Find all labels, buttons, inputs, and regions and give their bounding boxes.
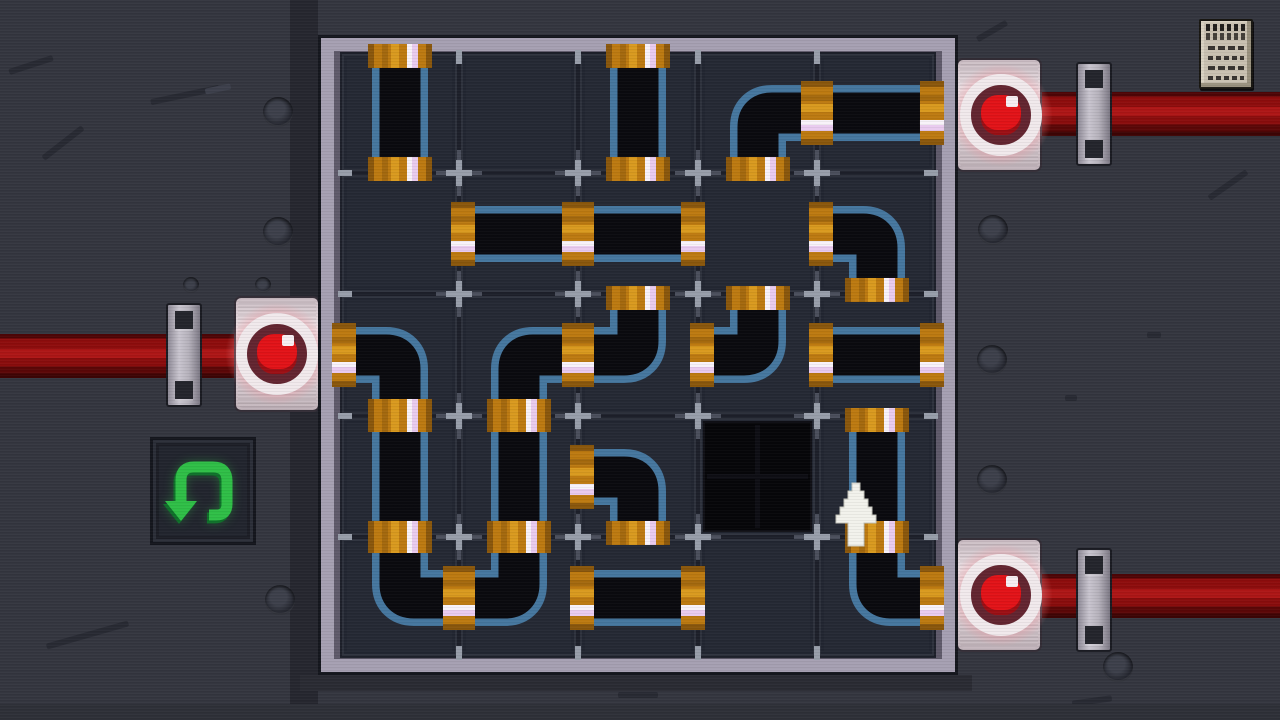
pipe-coupling [426,44,432,68]
pipe-coupling [426,529,432,553]
pipe-coupling [809,139,833,145]
elbow-bottom-left [578,416,697,537]
elbow-top-right [817,537,936,658]
pipe-coupling [368,157,432,181]
pipe-coupling [407,44,412,68]
pipe-coupling [809,120,833,125]
pipe-coupling [382,408,388,432]
pipe-coupling [451,216,475,222]
pipe-coupling [809,337,833,343]
red-pipe-top-right [1038,92,1280,136]
pipe-coupling [690,381,714,387]
rivet-bolt [263,97,293,127]
pipe-coupling [690,337,714,343]
red-pipe-bottom-right [1038,574,1280,618]
bottom-right-valve [956,538,1042,652]
pipe-coupling [809,323,833,329]
scratch-mark [976,20,1008,42]
pipe-coupling [570,459,594,465]
rivet-bolt [978,215,1008,245]
pipe-coupling [606,286,612,310]
pipe-coupling [451,202,475,266]
pipe-coupling [809,216,833,222]
pipe-coupling [570,337,594,343]
pipe-coupling [903,529,909,553]
pipe-coupling [920,381,944,387]
pipe-coupling [645,286,650,310]
pipe-coupling [920,120,944,125]
pipe-coupling [570,216,594,222]
pipe-coupling [545,529,551,553]
pipe-coupling [920,81,944,87]
scratch-mark [1147,332,1161,338]
pipe-coupling [368,157,374,181]
cell-r1-c3[interactable] [698,173,817,294]
pipe-coupling [570,202,594,266]
pipe-coupling [332,323,356,329]
pipe-coupling [451,624,475,630]
pipe-coupling [382,157,388,181]
pipe-coupling [784,286,790,310]
pipe-coupling [487,529,493,553]
pipe-coupling [690,362,714,367]
pipe-coupling [570,605,594,610]
pipe-coupling [510,408,518,432]
pipe-coupling [629,286,637,310]
pipe-coupling [451,260,475,266]
pipe-coupling [645,44,650,68]
pipe-coupling [681,216,705,222]
pipe-coupling [570,323,594,387]
pipe-coupling [681,624,705,630]
pipe-coupling [570,589,594,597]
empty-socket[interactable] [703,421,812,532]
pipe-coupling [809,81,833,145]
pipe-coupling [845,529,909,553]
elbow-bottom-left [817,173,936,294]
pipe-coupling [407,529,412,553]
pipe-coupling [690,323,714,329]
pipe-bracket-bottom-right [1076,548,1112,652]
pipe-coupling [765,286,770,310]
pipe-coupling [570,225,594,233]
pipe-coupling [681,241,705,246]
pipe-coupling [809,323,833,387]
vertical-pipe [340,416,459,537]
pipe-coupling [451,202,475,208]
vertical-pipe [340,52,459,173]
notepad-icon[interactable] [1199,19,1253,89]
rivet-bolt [265,585,295,615]
pipe-coupling [726,286,732,310]
pipe-coupling [681,566,705,572]
valve-red-light [257,334,297,374]
pipe-coupling [332,337,356,343]
pipe-coupling [809,362,833,367]
floor-shade [0,704,1280,720]
pipe-coupling [570,445,594,509]
horizontal-pipe [817,294,936,415]
pipe-coupling [681,260,705,266]
pipe-bracket-left [166,303,202,407]
pipe-coupling [426,408,432,432]
pipe-bracket-top-right [1076,62,1112,166]
pipe-coupling [487,529,551,553]
pipe-coupling [332,362,356,367]
pipe-coupling [368,408,374,432]
pipe-coupling [570,260,594,266]
pipe-coupling [451,566,475,572]
pipe-coupling [570,346,594,354]
elbow-bottom-left [340,294,459,415]
pipe-coupling [809,241,833,246]
pipe-coupling [391,529,399,553]
top-right-valve [956,58,1042,172]
pipe-coupling [920,566,944,630]
rivet-bolt [977,465,1007,495]
vertical-pipe [459,416,578,537]
pipe-coupling [845,529,851,553]
rivet-bolt [255,277,271,293]
pipe-coupling [501,529,507,553]
horizontal-pipe [578,173,697,294]
pipe-coupling [868,529,876,553]
elbow-top-right [340,537,459,658]
scratch-mark [205,83,232,94]
pipe-coupling [859,529,865,553]
pipe-coupling [501,408,507,432]
pipe-coupling [920,104,944,112]
pipe-coupling [765,157,770,181]
pipe-coupling [620,286,626,310]
pipe-coupling [920,95,944,101]
pipe-coupling [620,44,626,68]
pipe-coupling [391,44,399,68]
cell-r0-c1[interactable] [459,52,578,173]
pipe-coupling [391,408,399,432]
valve-red-light [981,95,1021,135]
pipe-coupling [920,580,944,586]
pipe-coupling [426,157,432,181]
notepad-binding [1206,33,1246,40]
pipe-coupling [809,104,833,112]
pipe-coupling [920,605,944,610]
pipe-coupling [510,529,518,553]
horizontal-pipe [459,173,578,294]
rivet-bolt [183,277,199,293]
pipe-coupling [487,408,493,432]
pipe-coupling [570,566,594,572]
pipe-coupling [332,323,356,387]
horizontal-pipe [817,52,936,173]
pipe-coupling [884,408,889,432]
pipe-coupling [391,157,399,181]
pipe-coupling [690,346,714,354]
pipe-coupling [570,566,594,630]
undo-arrow-icon [153,440,253,542]
pipe-coupling [664,44,670,68]
pipe-coupling [920,362,944,367]
elbow-top-left [698,294,817,415]
pipe-coupling [570,503,594,509]
pipe-coupling [920,566,944,572]
rivet-bolt [263,217,293,247]
pipe-coupling [570,484,594,489]
pipe-coupling [740,157,746,181]
pipe-coupling [726,157,732,181]
pipe-grid [340,52,936,658]
pipe-coupling [920,589,944,597]
pipe-coupling [570,323,594,329]
elbow-bottom-right [698,52,817,173]
pipe-coupling [681,566,705,630]
pipe-coupling [570,241,594,246]
pipe-coupling [809,81,833,87]
pipe-coupling [859,408,865,432]
pipe-coupling [332,381,356,387]
red-pipe-left [0,334,246,378]
pipe-coupling [809,202,833,266]
pipe-coupling [681,580,705,586]
cell-r4-c3[interactable] [698,537,817,658]
pipe-coupling [726,286,790,310]
pipe-coupling [368,44,432,68]
pipe-coupling [570,468,594,476]
pipe-coupling [570,445,594,451]
scratch-mark [618,692,658,698]
pipe-coupling [749,286,757,310]
pipe-coupling [690,323,714,387]
pipe-coupling [920,323,944,329]
scratch-mark [1065,395,1077,401]
pipe-coupling [664,286,670,310]
pipe-coupling [845,408,851,432]
pipe-coupling [382,529,388,553]
notepad-text-line [1208,46,1244,50]
valve-red-light [981,575,1021,615]
pipe-coupling [570,624,594,630]
pipe-coupling [570,202,594,208]
pipe-coupling [681,202,705,266]
frame-shadow [300,675,972,691]
notepad-text-line [1208,76,1244,80]
pipe-coupling [920,323,944,387]
pipe-coupling [845,408,909,432]
pipe-coupling [487,408,551,432]
pipe-coupling [681,605,705,610]
notepad-text-line [1208,66,1244,70]
pipe-coupling [368,529,374,553]
pipe-coupling [920,346,944,354]
pipe-coupling [368,44,374,68]
pipe-coupling [884,529,889,553]
pipe-coupling [545,408,551,432]
pipe-coupling [809,95,833,101]
pipe-coupling [681,202,705,208]
pipe-coupling [368,529,432,553]
rivet-bolt [1103,652,1133,682]
vertical-pipe [817,416,936,537]
pipe-coupling [606,44,670,68]
pipe-coupling [726,157,790,181]
pipe-coupling [920,139,944,145]
elbow-bottom-right [459,294,578,415]
pipe-coupling [809,381,833,387]
pipe-coupling [784,157,790,181]
pipe-coupling [920,81,944,145]
game-screen [0,0,1280,720]
pipe-coupling [451,566,475,630]
pipe-coupling [629,44,637,68]
pipe-coupling [570,580,594,586]
vertical-pipe [578,52,697,173]
pipe-coupling [920,624,944,630]
left-valve [234,296,320,412]
pipe-coupling [451,225,475,233]
pipe-coupling [407,157,412,181]
pipe-coupling [681,589,705,597]
pipe-coupling [526,408,531,432]
pipe-coupling [570,381,594,387]
pipe-coupling [407,408,412,432]
pipe-coupling [526,529,531,553]
pipe-coupling [332,346,356,354]
scratch-mark [41,125,84,161]
rivet-bolt [977,345,1007,375]
pipe-coupling [868,408,876,432]
notepad-text-line [1208,56,1244,60]
pipe-coupling [903,408,909,432]
scratch-mark [46,620,129,649]
pipe-coupling [809,202,833,208]
pipe-coupling [451,605,475,610]
pipe-coupling [740,286,746,310]
pipe-coupling [920,337,944,343]
pipe-coupling [606,44,612,68]
undo-button[interactable] [150,437,256,545]
cell-r1-c0[interactable] [340,173,459,294]
pipe-coupling [606,286,670,310]
horizontal-pipe [578,537,697,658]
elbow-top-left [578,294,697,415]
pipe-coupling [368,408,432,432]
pipe-coupling [451,580,475,586]
scratch-mark [8,55,54,75]
pipe-coupling [809,346,833,354]
scratch-mark [1207,169,1248,200]
pipe-coupling [749,157,757,181]
pipe-coupling [451,589,475,597]
pipe-coupling [382,44,388,68]
pipe-coupling [681,225,705,233]
pipe-coupling [809,225,833,233]
elbow-top-left [459,537,578,658]
pipe-coupling [451,241,475,246]
pipe-coupling [570,362,594,367]
pipe-coupling [809,260,833,266]
notepad-binding [1206,24,1246,31]
